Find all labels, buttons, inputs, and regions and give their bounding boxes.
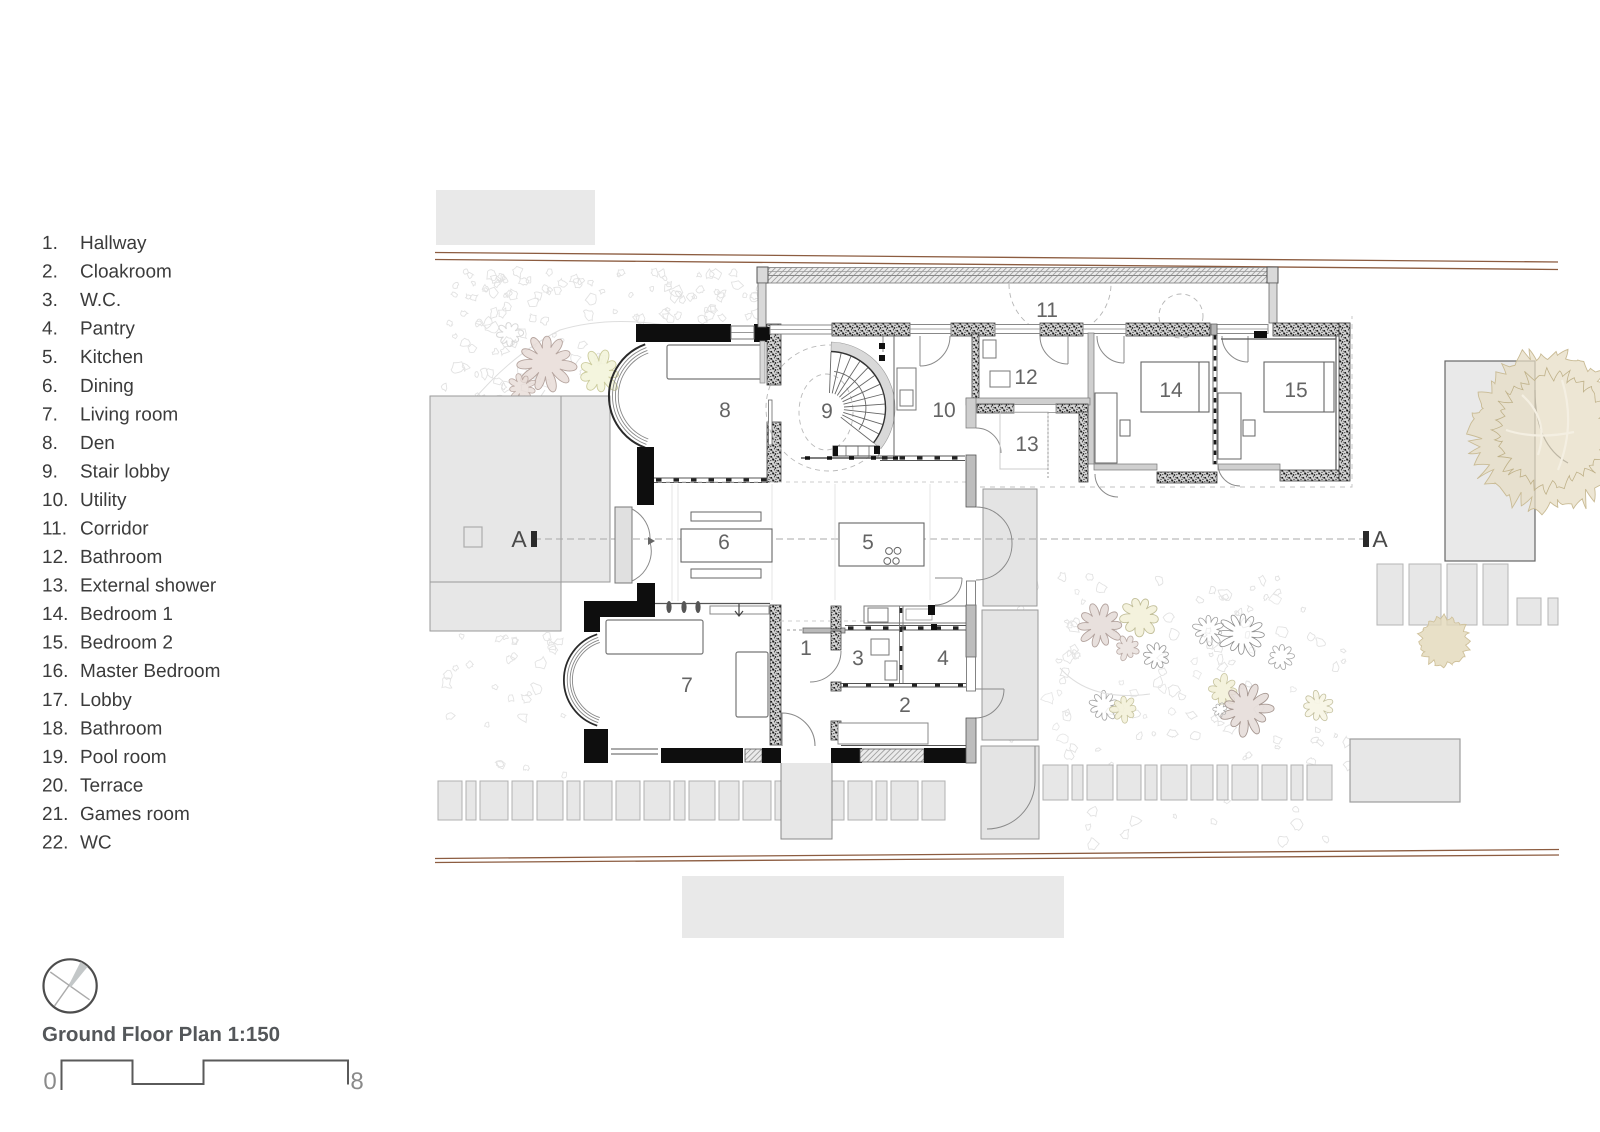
svg-text:W.C.: W.C. [80,290,121,311]
svg-text:19.: 19. [42,747,68,768]
svg-text:16.: 16. [42,661,68,682]
svg-text:2: 2 [899,694,911,717]
svg-text:0: 0 [43,1068,56,1095]
svg-text:Cloakroom: Cloakroom [80,262,172,283]
svg-text:Den: Den [80,433,115,454]
svg-text:3: 3 [852,647,864,670]
svg-text:12.: 12. [42,547,68,568]
svg-text:Stair lobby: Stair lobby [80,461,170,482]
svg-text:Bathroom: Bathroom [80,547,162,568]
svg-text:5.: 5. [42,347,58,368]
svg-text:Ground Floor Plan 1:150: Ground Floor Plan 1:150 [42,1023,280,1046]
svg-text:1: 1 [800,637,812,660]
svg-text:13.: 13. [42,576,68,597]
svg-text:Hallway: Hallway [80,233,147,254]
svg-text:Utility: Utility [80,490,127,511]
svg-text:20.: 20. [42,776,68,797]
svg-text:5: 5 [862,531,874,554]
svg-text:12: 12 [1014,366,1037,389]
svg-text:21.: 21. [42,804,68,825]
svg-text:Pantry: Pantry [80,319,135,340]
svg-text:2.: 2. [42,262,58,283]
svg-text:11.: 11. [42,519,67,540]
svg-text:14.: 14. [42,604,68,625]
svg-text:4.: 4. [42,319,58,340]
svg-text:11: 11 [1036,299,1058,322]
svg-text:1.: 1. [42,233,58,254]
svg-text:6.: 6. [42,376,58,397]
svg-text:4: 4 [937,647,949,670]
svg-text:Corridor: Corridor [80,519,149,540]
svg-text:7: 7 [681,674,693,697]
svg-text:Terrace: Terrace [80,776,143,797]
svg-text:22.: 22. [42,833,68,854]
svg-text:Kitchen: Kitchen [80,347,143,368]
svg-text:External shower: External shower [80,576,217,597]
svg-text:8: 8 [350,1068,363,1095]
svg-text:Master Bedroom: Master Bedroom [80,661,220,682]
svg-text:15.: 15. [42,633,68,654]
svg-text:Pool room: Pool room [80,747,167,768]
svg-text:9.: 9. [42,461,58,482]
svg-text:Bedroom 2: Bedroom 2 [80,633,173,654]
svg-text:17.: 17. [42,690,68,711]
svg-text:7.: 7. [42,404,58,425]
svg-text:Lobby: Lobby [80,690,132,711]
svg-text:Living room: Living room [80,404,178,425]
svg-text:8.: 8. [42,433,58,454]
svg-text:15: 15 [1284,379,1307,402]
svg-text:A: A [511,526,527,552]
svg-text:3.: 3. [42,290,58,311]
svg-text:A: A [1372,526,1388,552]
svg-text:Games room: Games room [80,804,190,825]
svg-text:Dining: Dining [80,376,134,397]
svg-text:13: 13 [1015,433,1038,456]
svg-text:10.: 10. [42,490,68,511]
svg-text:9: 9 [821,400,833,423]
svg-text:18.: 18. [42,718,68,739]
svg-text:WC: WC [80,833,112,854]
svg-text:6: 6 [718,531,730,554]
svg-text:10: 10 [932,399,955,422]
svg-text:Bathroom: Bathroom [80,718,162,739]
svg-text:Bedroom 1: Bedroom 1 [80,604,173,625]
svg-text:14: 14 [1159,379,1183,402]
svg-text:8: 8 [719,399,731,422]
